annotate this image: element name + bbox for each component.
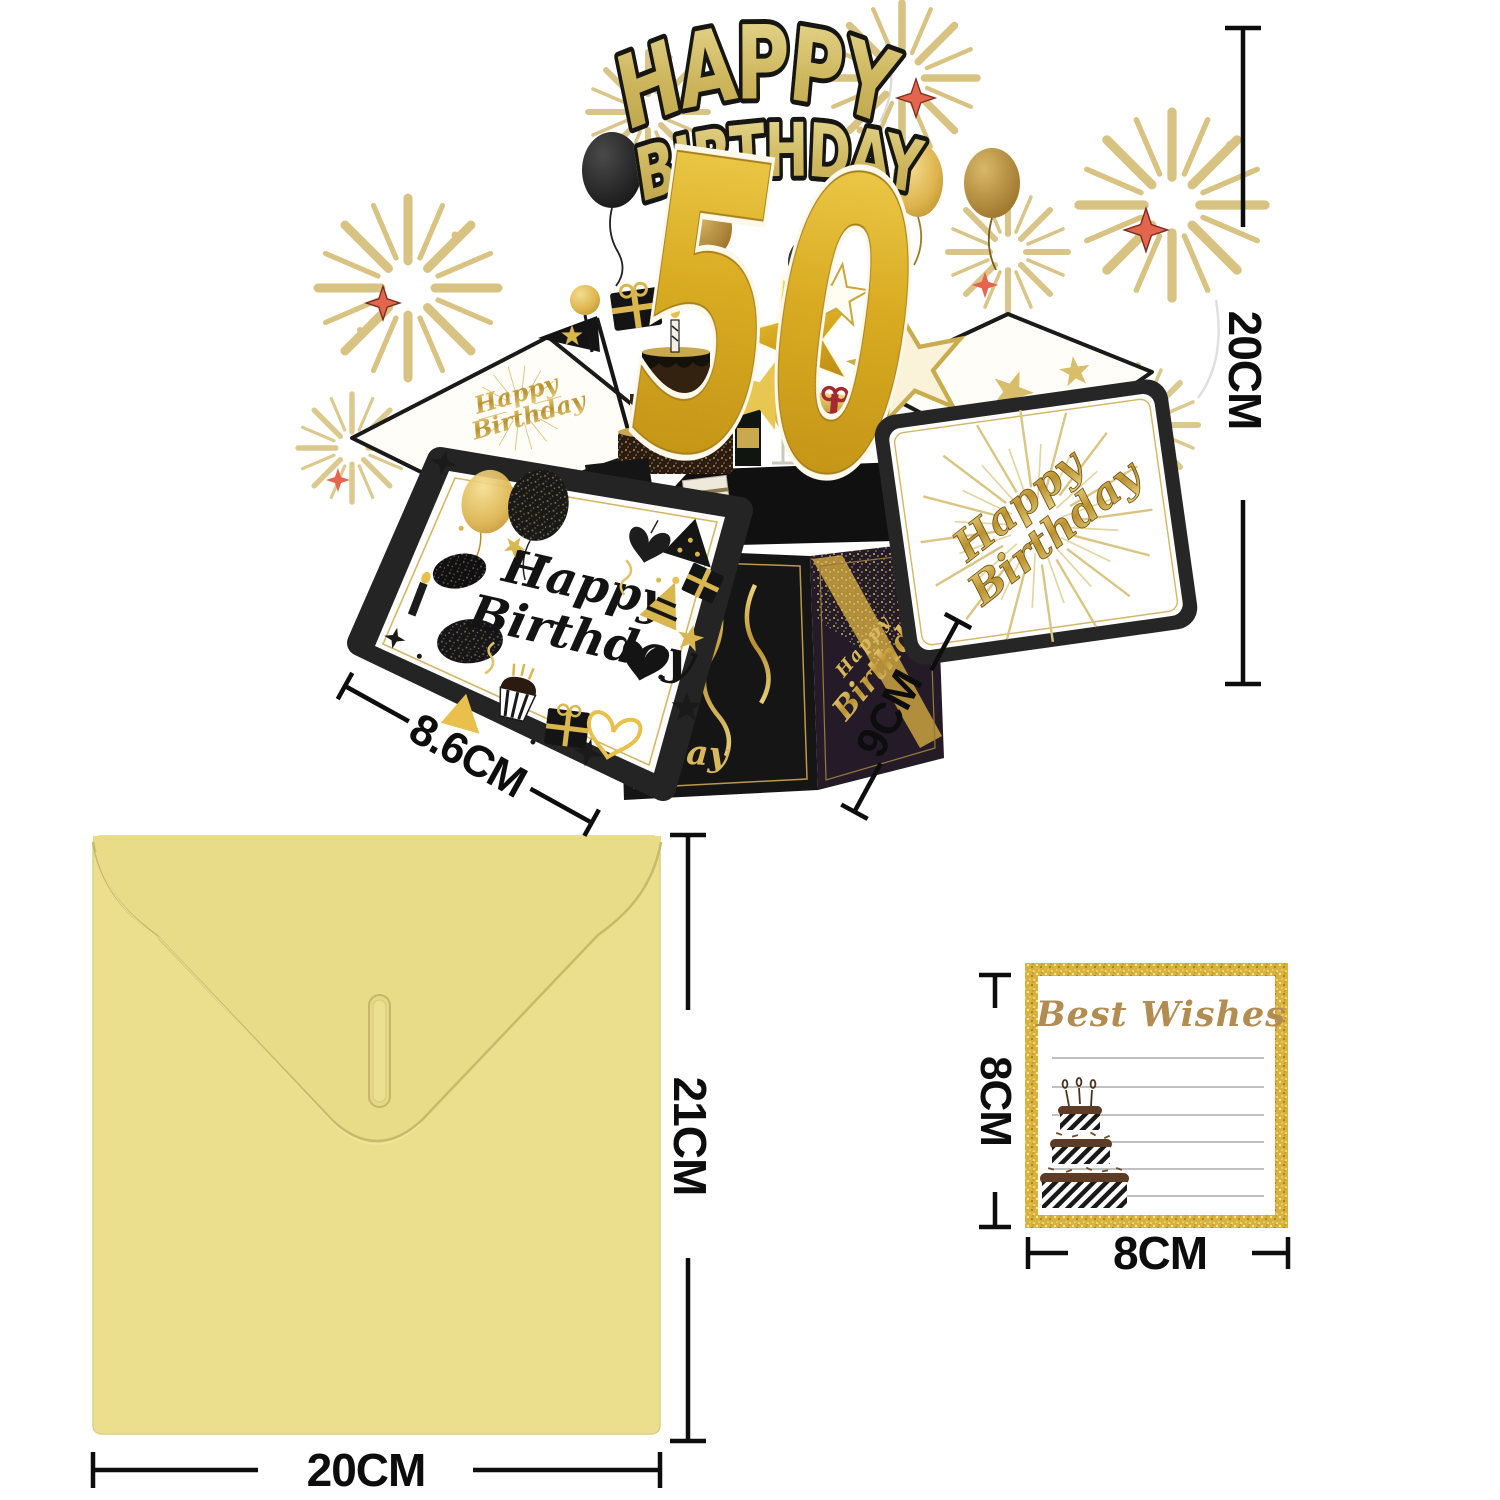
dimension-envelope-width: 20CM [93, 1444, 660, 1496]
envelope-height-label: 21CM [664, 1077, 716, 1196]
firework-icon [1079, 112, 1265, 298]
note-card: Best Wishes [1025, 963, 1288, 1228]
envelope [93, 836, 661, 1434]
dimension-note-height: 8CM [971, 975, 1020, 1227]
note-height-label: 8CM [971, 1056, 1020, 1146]
note-width-label: 8CM [1113, 1227, 1207, 1279]
popup-card: HAPPY BIRTHDAY Happy Birthday [298, 3, 1265, 800]
dimension-popup-height: 20CM [1219, 28, 1271, 684]
dimension-envelope-height: 21CM [664, 835, 716, 1441]
backing-edge [1198, 300, 1219, 398]
envelope-clasp-slot [369, 995, 390, 1107]
front-right-panel: Happy Birthday [872, 377, 1200, 668]
product-image: HAPPY BIRTHDAY Happy Birthday [0, 0, 1500, 1500]
note-card-title: Best Wishes [1035, 994, 1286, 1035]
dimension-note-width: 8CM [1028, 1227, 1288, 1279]
firework-icon [318, 198, 498, 378]
product-illustration: HAPPY BIRTHDAY Happy Birthday [0, 0, 1500, 1500]
popup-height-label: 20CM [1219, 311, 1271, 430]
envelope-width-label: 20CM [307, 1444, 426, 1496]
